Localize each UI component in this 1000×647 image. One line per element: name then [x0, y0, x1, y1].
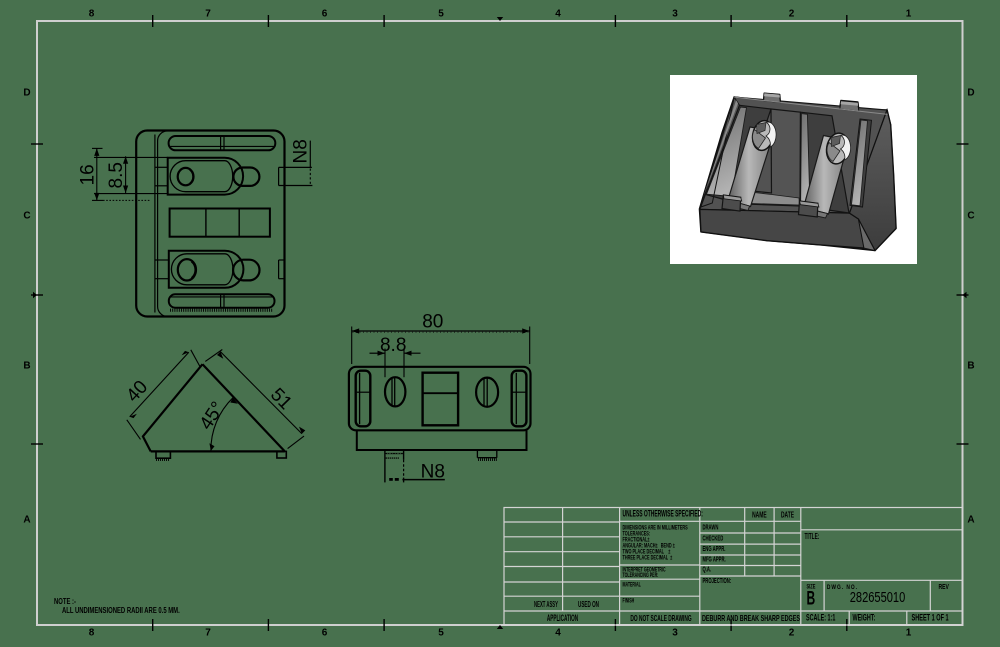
- svg-text:16: 16: [78, 164, 99, 185]
- svg-text:8: 8: [89, 9, 95, 20]
- svg-text:45°: 45°: [196, 398, 229, 434]
- svg-text:APPLICATION: APPLICATION: [547, 613, 578, 623]
- svg-text:N8: N8: [291, 139, 312, 163]
- svg-text:4: 4: [555, 628, 561, 639]
- svg-text:51: 51: [266, 384, 296, 414]
- svg-text:4: 4: [555, 9, 561, 20]
- svg-text:B: B: [23, 361, 30, 372]
- svg-text:3: 3: [672, 628, 678, 639]
- svg-text:THREE PLACE DECIMAL ±: THREE PLACE DECIMAL ±: [623, 555, 673, 562]
- svg-text:7: 7: [205, 628, 211, 639]
- svg-text:REV: REV: [939, 583, 950, 591]
- svg-text:SHEET 1 OF 1: SHEET 1 OF 1: [912, 612, 949, 623]
- svg-text:SCALE: 1:1: SCALE: 1:1: [806, 612, 835, 623]
- svg-text:B: B: [807, 588, 816, 610]
- svg-text:2: 2: [789, 628, 795, 639]
- svg-text:D: D: [23, 88, 30, 99]
- svg-text:8: 8: [89, 628, 95, 639]
- svg-text:MFG APPR.: MFG APPR.: [703, 557, 726, 564]
- svg-text:2: 2: [789, 9, 795, 20]
- svg-text:USED ON: USED ON: [578, 601, 599, 610]
- svg-text:N8: N8: [421, 462, 445, 483]
- svg-text:1: 1: [906, 628, 912, 639]
- svg-text:TITLE:: TITLE:: [805, 533, 820, 541]
- svg-text:TOLERANCING PER:: TOLERANCING PER:: [623, 572, 659, 579]
- svg-text:8.5: 8.5: [106, 162, 127, 188]
- svg-text:8.8: 8.8: [380, 335, 406, 356]
- svg-text:DATE: DATE: [781, 511, 795, 519]
- svg-text:NAME: NAME: [752, 511, 767, 519]
- svg-text:ALL UNDIMENSIONED RADII ARE 0.: ALL UNDIMENSIONED RADII ARE 0.5 MM.: [62, 607, 180, 615]
- svg-text:DEBURR AND BREAK SHARP EDGES: DEBURR AND BREAK SHARP EDGES: [702, 615, 800, 623]
- svg-text:CHECKED: CHECKED: [703, 536, 724, 543]
- svg-text:6: 6: [322, 9, 328, 20]
- svg-text:A: A: [23, 515, 30, 526]
- svg-text:NEXT ASSY: NEXT ASSY: [534, 601, 558, 610]
- svg-text:C: C: [23, 211, 30, 222]
- svg-text:D: D: [967, 88, 974, 99]
- svg-text:WEIGHT:: WEIGHT:: [853, 612, 876, 623]
- svg-text:7: 7: [205, 9, 211, 20]
- svg-text:5: 5: [438, 9, 444, 20]
- svg-text:6: 6: [322, 628, 328, 639]
- svg-text:C: C: [967, 211, 974, 222]
- svg-text:3: 3: [672, 9, 678, 20]
- svg-text:DO NOT SCALE DRAWING: DO NOT SCALE DRAWING: [630, 615, 691, 624]
- svg-text:PROJECTION:: PROJECTION:: [703, 578, 732, 585]
- svg-text:Q.A.: Q.A.: [703, 567, 712, 574]
- svg-text:B: B: [967, 361, 974, 372]
- svg-text:ENG APPR.: ENG APPR.: [703, 546, 726, 553]
- svg-text:MATERIAL: MATERIAL: [623, 582, 641, 589]
- svg-text:DRAWN: DRAWN: [703, 525, 719, 532]
- svg-text:A: A: [967, 515, 974, 526]
- svg-text:40: 40: [122, 377, 152, 407]
- svg-text:282655010: 282655010: [850, 588, 906, 605]
- svg-text:80: 80: [422, 312, 443, 333]
- svg-text:1: 1: [906, 9, 912, 20]
- svg-text:NOTE :-: NOTE :-: [54, 598, 77, 606]
- svg-text:UNLESS OTHERWISE SPECIFIED:: UNLESS OTHERWISE SPECIFIED:: [623, 508, 703, 519]
- svg-text:5: 5: [438, 628, 444, 639]
- svg-text:FINISH: FINISH: [623, 598, 635, 605]
